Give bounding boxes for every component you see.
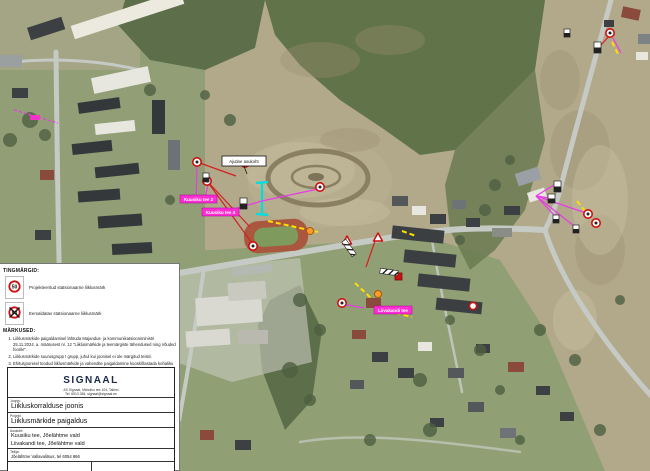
house bbox=[372, 352, 388, 362]
client-row: Tellija: Jõelähtme Vallavalitsus, tel 60… bbox=[8, 448, 174, 461]
house bbox=[504, 206, 520, 215]
house bbox=[536, 386, 550, 395]
notes-title: MÄRKUSED: bbox=[3, 328, 177, 334]
legend-title: TINGMÄRGID: bbox=[3, 268, 177, 274]
house bbox=[398, 368, 414, 378]
house bbox=[235, 440, 251, 450]
svg-text:Liivakandi tee: Liivakandi tee bbox=[378, 308, 408, 313]
house bbox=[452, 200, 466, 209]
house bbox=[500, 428, 516, 438]
house bbox=[492, 228, 512, 237]
house bbox=[350, 380, 364, 389]
drawing-name-value: Liikluskorralduse joonis bbox=[8, 403, 174, 412]
note-item: Liiklusmärkide paigaldamisel lähtuda Maj… bbox=[13, 336, 177, 353]
author-cell: Koostas:K.Sõjamaa (tel. 53 368670) bbox=[8, 462, 91, 471]
building bbox=[12, 88, 28, 98]
project-row: Projekt: Liiklusmärkide paigaldus bbox=[8, 412, 174, 427]
location-line2: Liivakandi tee, Jõelähtme vald bbox=[8, 441, 174, 449]
apartment-block bbox=[112, 242, 153, 255]
house bbox=[468, 402, 484, 412]
location-row: Asukoht: Kuusiku tee, Jõelähtme vald Lii… bbox=[8, 427, 174, 448]
legend-item-label: Projekteeritud statsionaarne liiklusmärk bbox=[29, 285, 105, 290]
svg-text:Ajutine asukoht: Ajutine asukoht bbox=[229, 159, 259, 164]
school-building bbox=[185, 328, 230, 347]
house bbox=[392, 196, 408, 206]
building bbox=[0, 55, 22, 67]
svg-text:Kuusiku tee 4: Kuusiku tee 4 bbox=[206, 210, 236, 215]
house bbox=[560, 412, 574, 421]
house bbox=[466, 218, 480, 227]
building bbox=[168, 140, 180, 170]
house bbox=[418, 342, 432, 351]
house bbox=[430, 214, 446, 224]
house bbox=[40, 170, 54, 180]
note-item: Liiklusmärkide suurusgrupp I grupp, juhu… bbox=[13, 354, 177, 360]
house bbox=[508, 362, 524, 372]
building bbox=[152, 100, 165, 134]
title-block-panel: TINGMÄRGID: 50 Projekteeritud statsionaa… bbox=[0, 263, 180, 471]
street-label-3: Liivakandi tee bbox=[374, 306, 412, 314]
house bbox=[352, 330, 366, 339]
author-row: Koostas:K.Sõjamaa (tel. 53 368670) Proje… bbox=[8, 461, 174, 471]
house bbox=[448, 368, 464, 378]
street-label-2: Kuusiku tee 4 bbox=[202, 208, 239, 216]
school-building bbox=[227, 281, 266, 302]
svg-text:50: 50 bbox=[12, 285, 18, 291]
traffic-plan-drawing: Kuusiku tee 2 Kuusiku tee 4 Liivakandi t… bbox=[0, 0, 650, 471]
house bbox=[636, 52, 648, 60]
location-line1: Kuusiku tee, Jõelähtme vald bbox=[8, 433, 174, 441]
street-label-1: Kuusiku tee 2 bbox=[180, 195, 217, 203]
legend-item-removable: 50 Eemaldatav statsionaarne liiklusmärk bbox=[5, 302, 177, 325]
legend-item-projected: 50 Projekteeritud statsionaarne liiklusm… bbox=[5, 276, 177, 299]
house bbox=[604, 20, 614, 27]
company-logo-row: SIGNAAL AS Signaal, Männiku tee 104, Tal… bbox=[8, 368, 174, 397]
company-logo: SIGNAAL bbox=[63, 375, 119, 386]
house bbox=[200, 430, 214, 440]
title-block-table: SIGNAAL AS Signaal, Männiku tee 104, Tal… bbox=[7, 367, 175, 471]
small-magenta-marker bbox=[30, 115, 40, 120]
school-building bbox=[238, 330, 268, 344]
house bbox=[35, 230, 51, 240]
drawing-name-row: Joonis: Liikluskorralduse joonis bbox=[8, 397, 174, 412]
house bbox=[412, 206, 426, 215]
project-value: Liiklusmärkide paigaldus bbox=[8, 418, 174, 427]
crossed-speed-limit-50-sign-icon: 50 bbox=[5, 302, 24, 325]
client-value: Jõelähtme Vallavalitsus, tel 6054 866 bbox=[8, 454, 174, 461]
house bbox=[638, 34, 650, 44]
designer-cell: Projekteerija:K.Sõjamaa bbox=[91, 462, 175, 471]
speed-limit-50-sign-icon: 50 bbox=[5, 276, 24, 299]
legend-item-label: Eemaldatav statsionaarne liiklusmärk bbox=[29, 311, 101, 316]
svg-text:Kuusiku tee 2: Kuusiku tee 2 bbox=[184, 197, 214, 202]
